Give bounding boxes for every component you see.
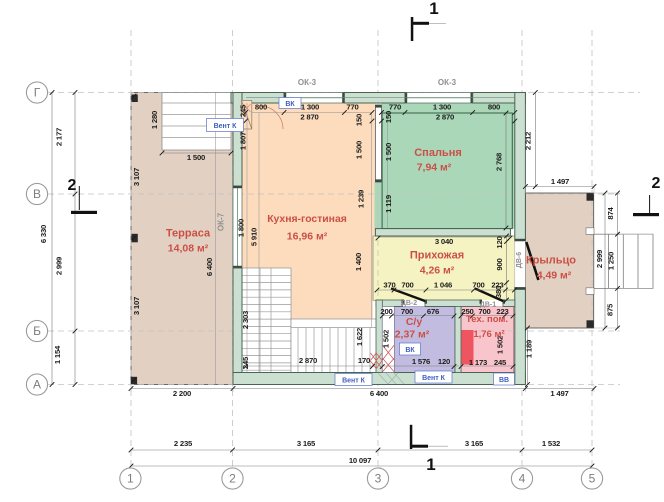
- svg-text:2 870: 2 870: [300, 113, 318, 122]
- svg-text:700: 700: [472, 281, 484, 290]
- svg-text:1 500: 1 500: [384, 143, 393, 161]
- svg-text:2: 2: [652, 175, 661, 192]
- svg-text:150: 150: [355, 114, 364, 126]
- svg-text:2 177: 2 177: [55, 128, 64, 146]
- svg-text:4,49 м²: 4,49 м²: [537, 270, 572, 282]
- svg-text:1 497: 1 497: [551, 177, 569, 186]
- svg-text:2 999: 2 999: [595, 250, 604, 268]
- svg-text:3 107: 3 107: [132, 297, 141, 315]
- svg-text:Кухня-гостиная: Кухня-гостиная: [267, 214, 347, 225]
- svg-text:Крыльцо: Крыльцо: [526, 255, 576, 267]
- svg-text:3 040: 3 040: [435, 237, 453, 246]
- svg-text:900: 900: [495, 258, 504, 270]
- svg-text:1 807: 1 807: [239, 132, 248, 150]
- svg-text:6 400: 6 400: [205, 258, 214, 276]
- svg-text:5: 5: [589, 472, 596, 486]
- svg-text:245: 245: [239, 104, 248, 117]
- svg-text:1 300: 1 300: [301, 103, 319, 112]
- svg-text:1 239: 1 239: [357, 190, 366, 208]
- svg-text:ДВ-2: ДВ-2: [401, 300, 417, 307]
- svg-text:ВВ: ВВ: [499, 377, 509, 384]
- svg-text:1 154: 1 154: [53, 345, 62, 364]
- svg-text:1 280: 1 280: [150, 111, 159, 129]
- svg-text:4: 4: [519, 472, 526, 486]
- svg-text:ВК: ВК: [285, 101, 295, 108]
- svg-text:1 500: 1 500: [355, 141, 364, 159]
- svg-text:2 212: 2 212: [524, 132, 533, 150]
- svg-text:1 189: 1 189: [525, 340, 534, 358]
- svg-text:700: 700: [401, 281, 413, 290]
- svg-text:1 119: 1 119: [384, 195, 393, 213]
- svg-text:3 165: 3 165: [465, 439, 484, 448]
- svg-text:1 532: 1 532: [542, 439, 560, 448]
- svg-text:6 400: 6 400: [370, 389, 388, 398]
- svg-text:1,76 м²: 1,76 м²: [473, 329, 504, 340]
- svg-text:Прихожая: Прихожая: [410, 250, 464, 262]
- svg-text:2 999: 2 999: [55, 257, 64, 275]
- svg-text:2 870: 2 870: [436, 113, 454, 122]
- svg-text:ОК-3: ОК-3: [438, 78, 457, 87]
- svg-text:700: 700: [401, 307, 413, 316]
- svg-text:16,96 м²: 16,96 м²: [287, 231, 328, 243]
- svg-text:875: 875: [606, 303, 615, 316]
- svg-text:2 303: 2 303: [241, 311, 250, 329]
- svg-text:2: 2: [229, 472, 236, 486]
- svg-text:10 097: 10 097: [349, 456, 371, 465]
- svg-text:1 173: 1 173: [469, 358, 487, 367]
- svg-text:1 500: 1 500: [187, 153, 205, 162]
- svg-text:2 235: 2 235: [174, 439, 193, 448]
- svg-text:А: А: [33, 378, 41, 392]
- svg-text:1 622: 1 622: [355, 328, 364, 346]
- svg-text:ВК: ВК: [405, 347, 415, 354]
- svg-text:ДВ-6: ДВ-6: [516, 252, 523, 268]
- svg-text:200: 200: [380, 307, 392, 316]
- svg-text:120: 120: [438, 357, 450, 366]
- svg-text:1: 1: [426, 455, 435, 474]
- svg-text:1 576: 1 576: [412, 357, 430, 366]
- svg-text:Г: Г: [34, 86, 41, 100]
- svg-text:245: 245: [494, 358, 507, 367]
- svg-text:770: 770: [346, 103, 358, 112]
- svg-text:Тех. пом.: Тех. пом.: [466, 314, 508, 325]
- svg-text:Вент К: Вент К: [214, 123, 238, 130]
- svg-text:1 800: 1 800: [237, 219, 246, 237]
- svg-text:2 870: 2 870: [299, 356, 317, 365]
- svg-text:370: 370: [383, 281, 395, 290]
- svg-text:ОК-3: ОК-3: [298, 78, 317, 87]
- svg-text:14,08 м²: 14,08 м²: [168, 243, 209, 255]
- svg-text:3: 3: [375, 472, 382, 486]
- svg-text:Б: Б: [33, 324, 41, 338]
- svg-text:Спальня: Спальня: [414, 147, 462, 159]
- svg-text:1 300: 1 300: [433, 103, 451, 112]
- svg-text:1: 1: [429, 0, 438, 18]
- svg-text:245: 245: [241, 356, 250, 369]
- svg-text:1 502: 1 502: [382, 330, 391, 348]
- svg-text:150: 150: [384, 111, 393, 123]
- svg-text:В: В: [33, 187, 41, 201]
- svg-text:800: 800: [255, 103, 267, 112]
- svg-text:120: 120: [495, 236, 504, 248]
- svg-text:1 046: 1 046: [434, 281, 452, 290]
- svg-text:676: 676: [427, 307, 439, 316]
- svg-text:5 910: 5 910: [250, 228, 259, 246]
- svg-text:7,94 м²: 7,94 м²: [417, 162, 452, 174]
- svg-text:Вент К: Вент К: [342, 378, 366, 385]
- svg-text:800: 800: [488, 103, 500, 112]
- svg-text:1 400: 1 400: [354, 253, 363, 271]
- svg-text:1 250: 1 250: [607, 252, 616, 270]
- svg-text:3 107: 3 107: [132, 168, 141, 186]
- svg-text:Вент К: Вент К: [422, 375, 446, 382]
- svg-text:6 330: 6 330: [39, 225, 48, 243]
- svg-text:223: 223: [491, 281, 503, 290]
- svg-text:2: 2: [68, 177, 77, 194]
- svg-text:ДВ-1: ДВ-1: [480, 302, 496, 309]
- svg-text:С/у: С/у: [406, 316, 423, 328]
- svg-text:ОК-7: ОК-7: [217, 212, 226, 231]
- svg-text:874: 874: [606, 206, 615, 219]
- svg-text:2 768: 2 768: [495, 152, 504, 171]
- svg-text:2,37 м²: 2,37 м²: [395, 329, 430, 341]
- svg-text:4,26 м²: 4,26 м²: [420, 265, 455, 277]
- svg-text:2 200: 2 200: [173, 389, 191, 398]
- svg-text:1: 1: [127, 472, 134, 486]
- svg-text:1 497: 1 497: [550, 389, 568, 398]
- svg-text:Терраса: Терраса: [166, 228, 211, 240]
- svg-text:170: 170: [358, 356, 370, 365]
- svg-text:770: 770: [389, 103, 401, 112]
- svg-text:3 165: 3 165: [297, 439, 316, 448]
